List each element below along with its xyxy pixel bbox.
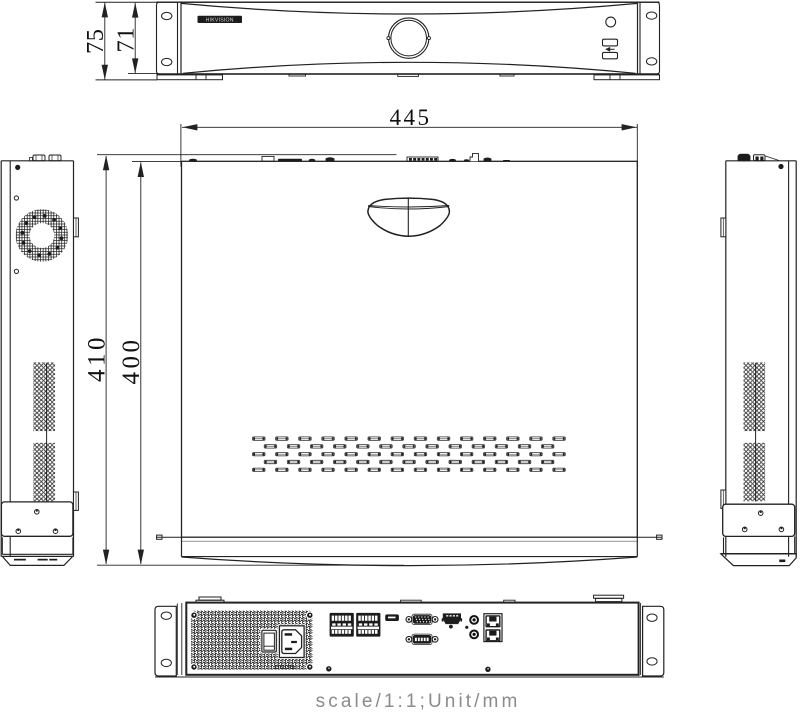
svg-text:71: 71 xyxy=(113,27,140,53)
svg-text:445: 445 xyxy=(390,105,432,130)
svg-text:410: 410 xyxy=(84,334,111,382)
svg-text:HIKVISION: HIKVISION xyxy=(206,17,234,23)
svg-text:400: 400 xyxy=(118,337,145,385)
svg-text:75: 75 xyxy=(82,28,109,54)
svg-text:scale/1:1;Unit/mm: scale/1:1;Unit/mm xyxy=(316,691,521,712)
